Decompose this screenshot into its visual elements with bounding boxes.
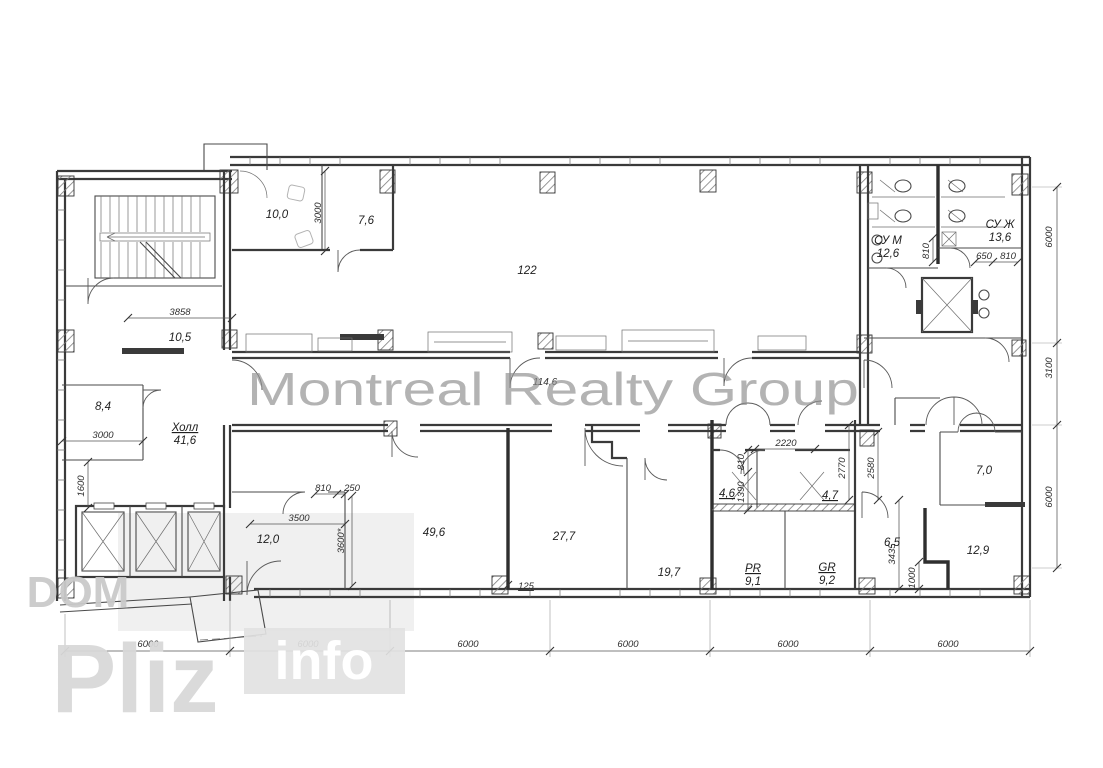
room-label-12-9: 12,9 <box>967 545 990 557</box>
watermark-backdrops <box>118 513 414 631</box>
room-name-wc-m: СУ М <box>874 235 902 247</box>
elevator-right <box>916 278 978 332</box>
watermark-pliz: Pliz <box>51 624 218 733</box>
dim-3000-horiz: 3000 <box>92 430 114 441</box>
staircase <box>66 196 222 286</box>
dim-bottom-4: 6000 <box>617 639 639 650</box>
watermark-center: Montreal Realty Group <box>247 363 859 415</box>
dim-650: 650 <box>976 251 993 262</box>
room-name-pr: PR <box>745 563 761 575</box>
dim-2770: 2770 <box>837 457 848 480</box>
dim-3000-vert: 3000 <box>313 202 324 224</box>
dim-810-d: 810 <box>921 242 932 259</box>
watermark-info: info <box>275 631 374 691</box>
dim-right-2: 3100 <box>1044 357 1055 379</box>
dim-3858: 3858 <box>169 307 191 318</box>
watermark-dom: DOM <box>27 568 130 617</box>
dim-1600: 1600 <box>76 475 87 497</box>
room-label-4-6: 4,6 <box>719 488 736 500</box>
dim-1390: 1390 <box>736 481 747 503</box>
room-name-wc-f: СУ Ж <box>986 219 1016 231</box>
dim-right-1: 6000 <box>1044 226 1055 248</box>
floor-plan-svg: 6000 6000 6000 6000 6000 6000 6000 3100 … <box>0 0 1103 768</box>
room-label-49-6: 49,6 <box>423 527 446 539</box>
room-label-7-0: 7,0 <box>976 465 993 477</box>
dim-bottom-3: 6000 <box>457 639 479 650</box>
room-label-27-7: 27,7 <box>552 531 576 543</box>
dim-250: 250 <box>343 483 361 494</box>
room-label-6-5: 6,5 <box>884 537 901 549</box>
room-name-hall: Холл <box>171 422 199 434</box>
room-label-wc-f-area: 13,6 <box>989 232 1012 244</box>
dim-3500: 3500 <box>288 513 310 524</box>
room-label-wc-m-area: 12,6 <box>877 248 900 260</box>
dim-810-a: 810 <box>315 483 332 494</box>
room-label-12-0: 12,0 <box>257 534 280 546</box>
room-label-pr-area: 9,1 <box>745 576 761 588</box>
dim-right-3: 6000 <box>1044 486 1055 508</box>
room-label-hall-area: 41,6 <box>174 435 197 447</box>
dim-bottom-5: 6000 <box>777 639 799 650</box>
dim-125: 125 <box>518 581 535 592</box>
room-name-gr: GR <box>818 562 835 574</box>
dim-2220: 2220 <box>774 438 797 449</box>
room-label-4-7: 4,7 <box>822 490 839 502</box>
furniture <box>287 184 314 248</box>
dim-810-b: 810 <box>736 453 747 470</box>
dim-2580: 2580 <box>866 457 877 480</box>
room-label-10-0: 10,0 <box>266 209 289 221</box>
dim-3600: 3600* <box>336 528 347 553</box>
room-label-19-7: 19,7 <box>658 567 681 579</box>
dim-bottom-6: 6000 <box>937 639 959 650</box>
room-label-gr-area: 9,2 <box>819 575 836 587</box>
floor-plan-page: 6000 6000 6000 6000 6000 6000 6000 3100 … <box>0 0 1103 768</box>
dim-1000: 1000 <box>907 567 918 589</box>
room-label-122: 122 <box>517 265 537 277</box>
room-label-7-6: 7,6 <box>358 215 375 227</box>
room-label-8-4: 8,4 <box>95 401 111 413</box>
room-label-10-5: 10,5 <box>169 332 192 344</box>
dim-810-c: 810 <box>1000 251 1017 262</box>
